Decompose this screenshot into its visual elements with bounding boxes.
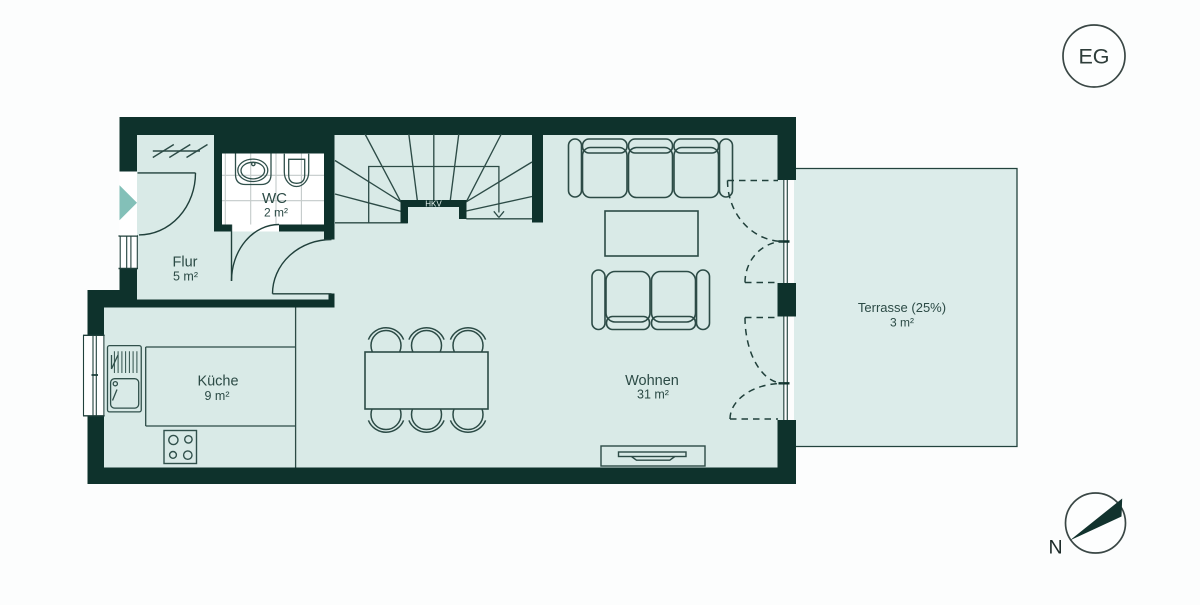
svg-text:31 m²: 31 m² xyxy=(637,388,669,402)
svg-text:Terrasse (25%): Terrasse (25%) xyxy=(858,300,946,315)
svg-text:HKV: HKV xyxy=(425,200,442,209)
svg-text:9 m²: 9 m² xyxy=(205,389,230,403)
svg-text:5 m²: 5 m² xyxy=(173,270,198,284)
svg-text:WC: WC xyxy=(262,190,287,207)
svg-text:Flur: Flur xyxy=(173,255,198,271)
svg-text:2 m²: 2 m² xyxy=(264,206,288,220)
svg-text:Küche: Küche xyxy=(197,374,238,390)
svg-text:N: N xyxy=(1048,537,1062,559)
svg-text:3 m²: 3 m² xyxy=(890,316,914,330)
svg-text:EG: EG xyxy=(1078,45,1109,69)
